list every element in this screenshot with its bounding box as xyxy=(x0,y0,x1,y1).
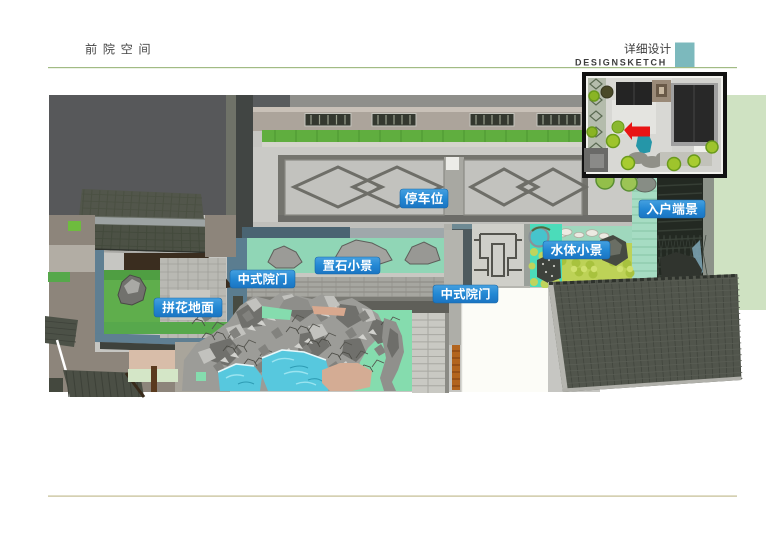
svg-text:DESIGNSKETCH: DESIGNSKETCH xyxy=(575,58,667,68)
